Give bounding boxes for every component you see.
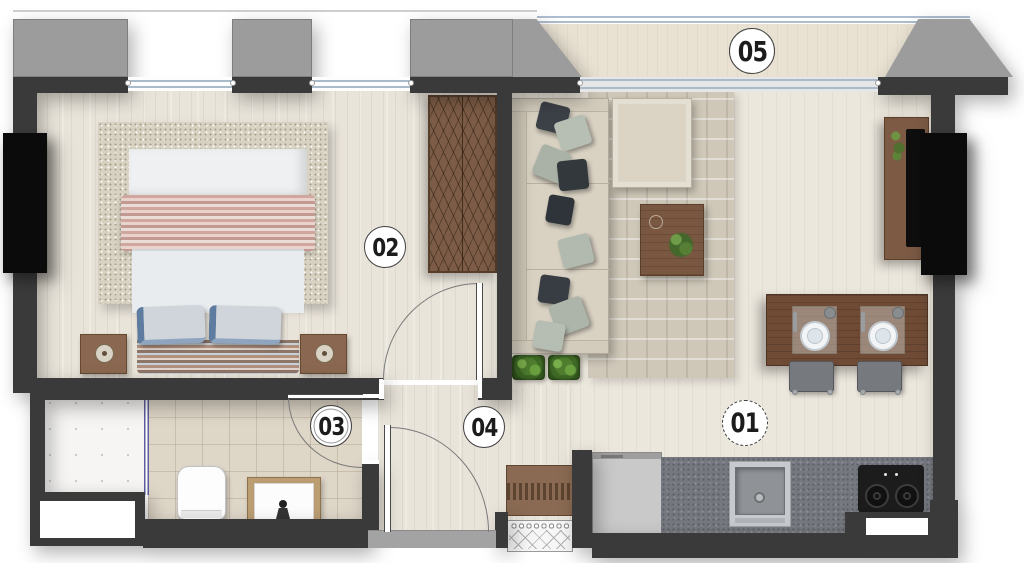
room-label-02: 02 xyxy=(364,226,406,268)
room-label-03: 03 xyxy=(310,405,352,447)
room-label-05: 05 xyxy=(729,28,775,74)
floor-plan-canvas: 01 02 03 04 05 xyxy=(0,0,1024,563)
labels-layer: 01 02 03 04 05 xyxy=(0,0,1024,563)
room-label-01: 01 xyxy=(722,400,768,446)
room-label-04: 04 xyxy=(463,406,505,448)
